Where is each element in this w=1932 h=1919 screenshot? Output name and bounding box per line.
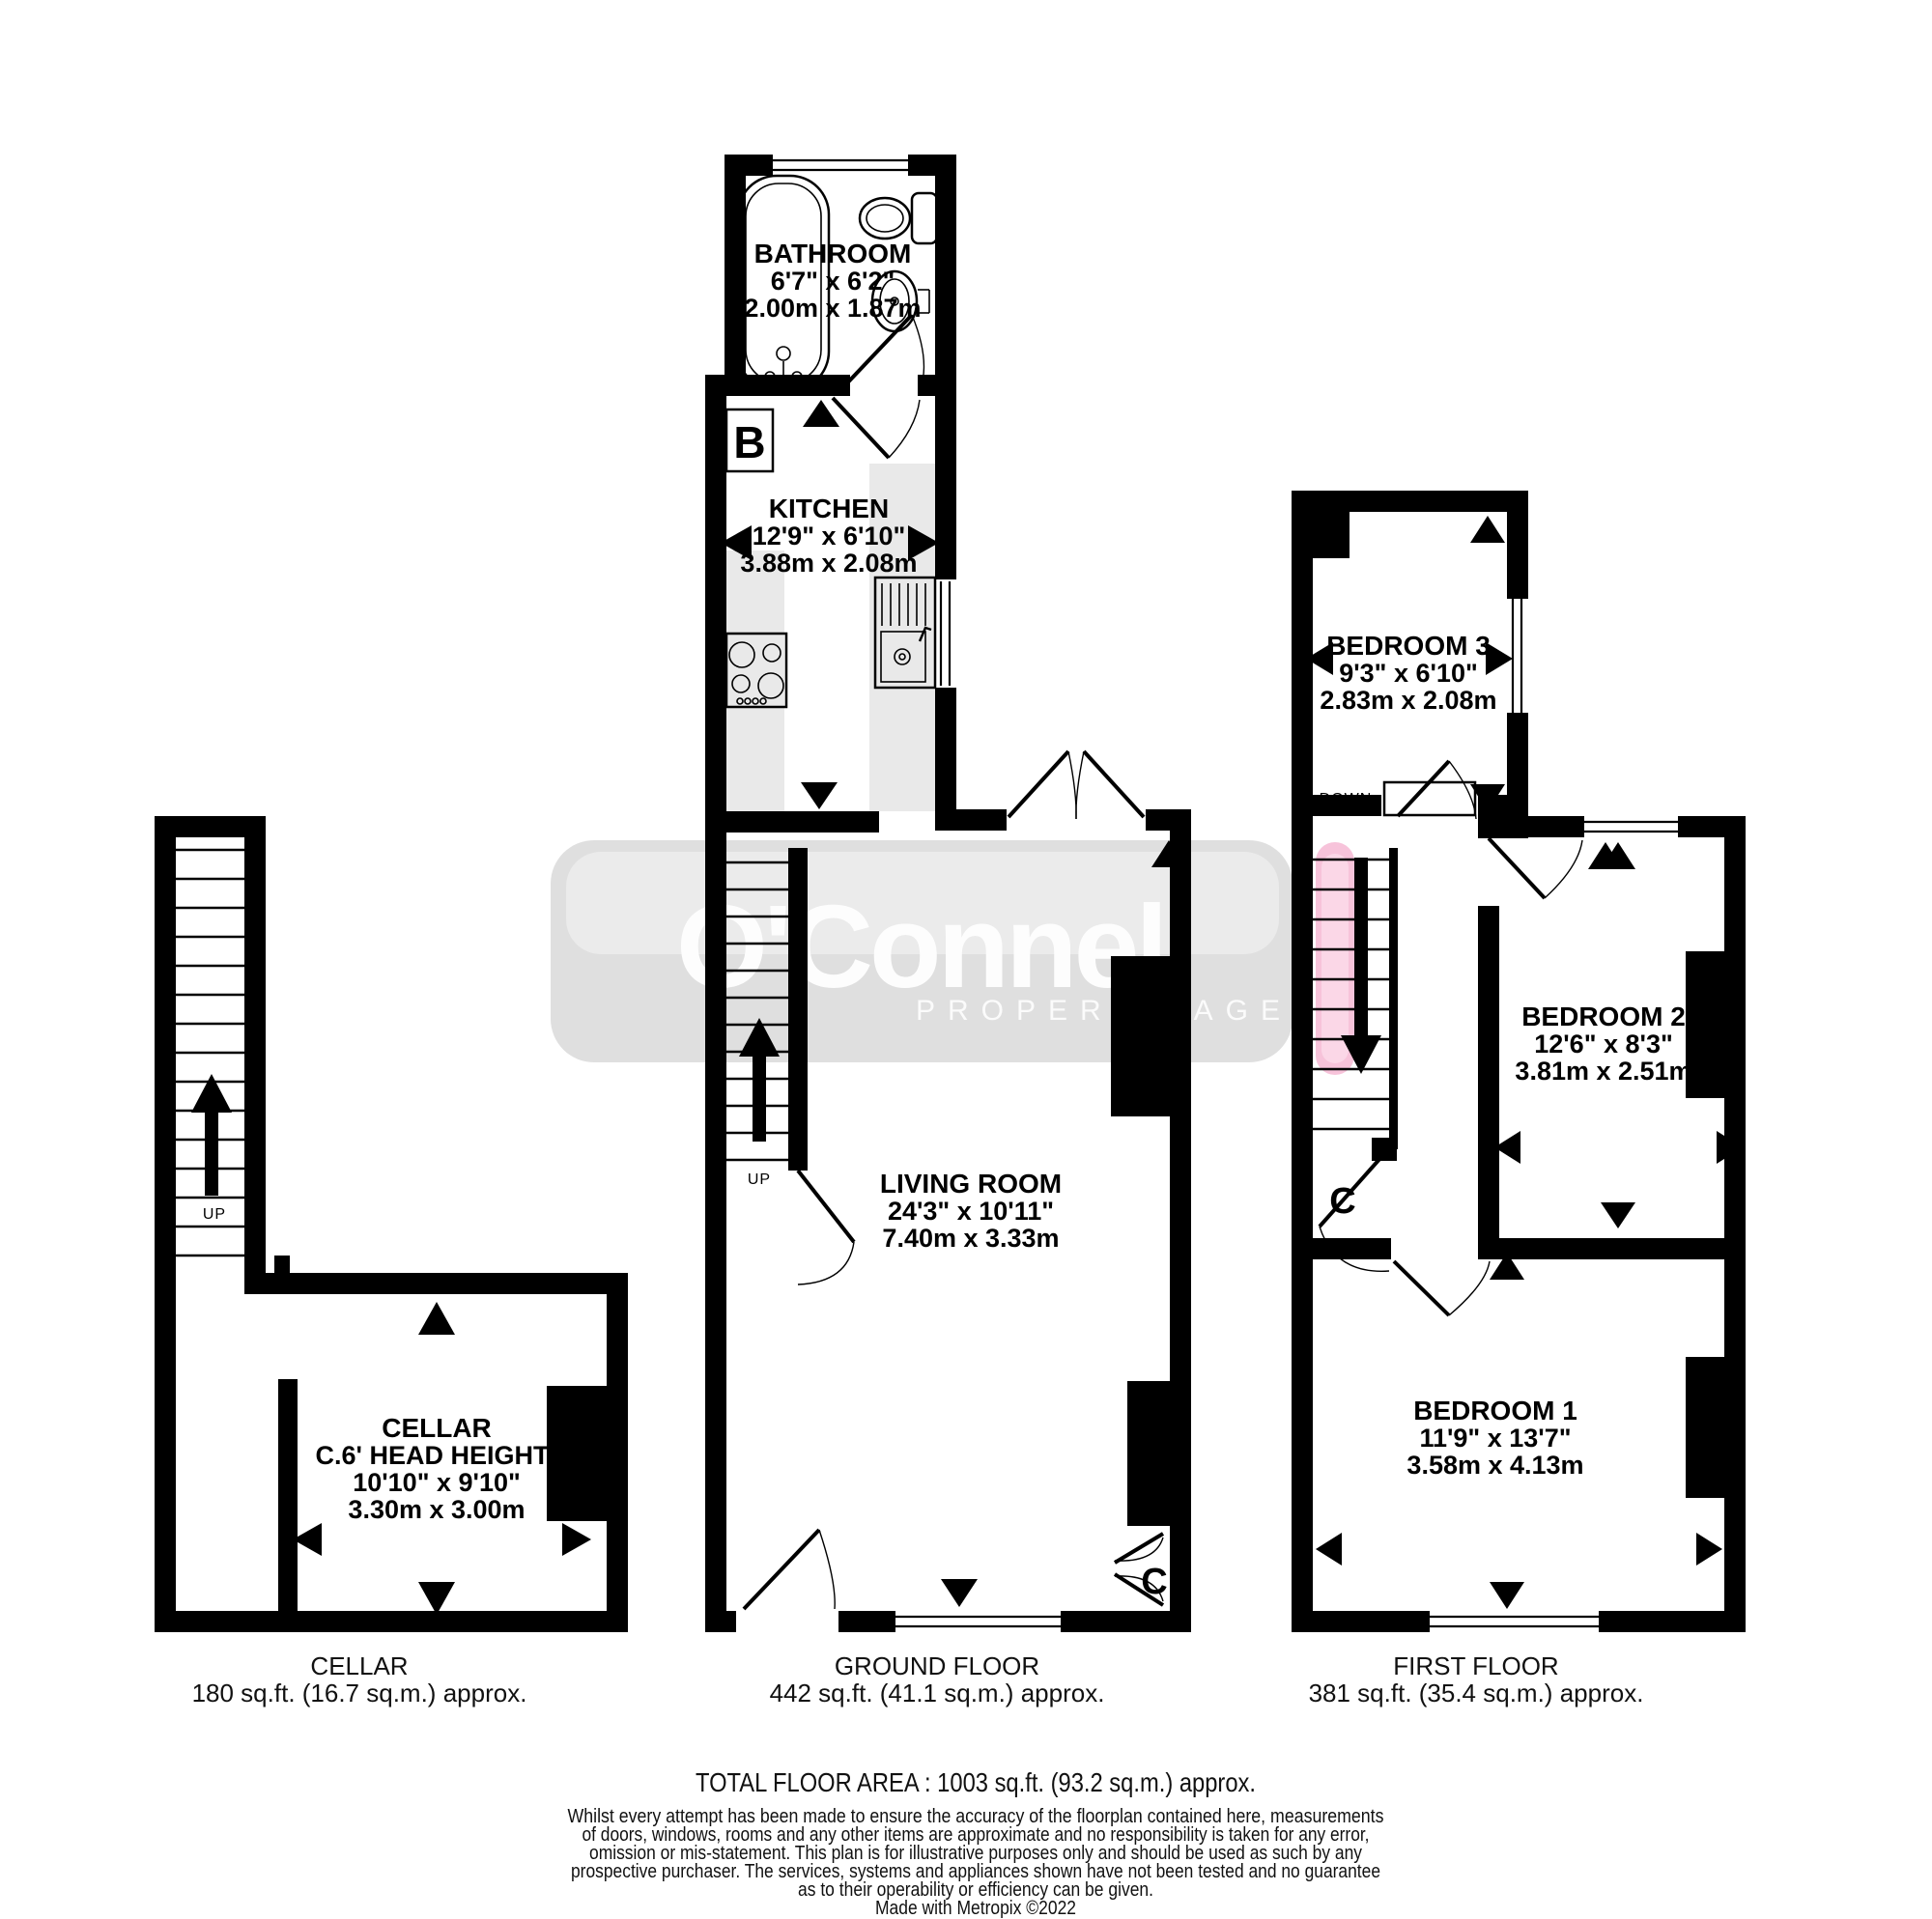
internal-wall — [278, 1379, 298, 1611]
first-floor-label: FIRST FLOOR — [1393, 1651, 1558, 1680]
room-dims-metric: 3.81m x 2.51m — [1515, 1057, 1691, 1086]
room-name: BEDROOM 3 — [1326, 631, 1491, 661]
cupboard-label: C — [1329, 1181, 1355, 1222]
room-name: BEDROOM 1 — [1413, 1396, 1577, 1425]
room-name: BATHROOM — [754, 239, 912, 268]
door-leaf — [833, 398, 889, 458]
door-leaf — [1394, 1261, 1449, 1315]
direction-arrow-up — [803, 400, 839, 427]
direction-arrow-down — [801, 782, 838, 809]
stair-direction-arrow — [753, 1055, 766, 1142]
room-dims-metric: 3.30m x 3.00m — [348, 1495, 525, 1524]
room-name: CELLAR — [382, 1413, 492, 1443]
room-dims-imperial: 9'3" x 6'10" — [1339, 659, 1478, 688]
wall — [1292, 1611, 1430, 1632]
room-dims-imperial: 24'3" x 10'11" — [888, 1197, 1054, 1226]
stairs-up — [176, 850, 244, 1256]
cellar-room-label: CELLAR C.6' HEAD HEIGHT) 10'10" x 9'10" … — [316, 1413, 558, 1524]
toilet-icon — [860, 193, 937, 243]
room-name: BEDROOM 2 — [1521, 1002, 1686, 1031]
door-arc — [1449, 761, 1476, 819]
room-dims-metric: 7.40m x 3.33m — [882, 1224, 1059, 1253]
boiler-label: B — [733, 417, 765, 467]
room-dims-imperial: 12'6" x 8'3" — [1534, 1030, 1673, 1058]
wall-stub — [1372, 1138, 1397, 1161]
door-arc — [798, 1242, 854, 1284]
direction-arrow-down — [1490, 1582, 1524, 1609]
bedroom2-room-label: BEDROOM 2 12'6" x 8'3" 3.81m x 2.51m — [1515, 1002, 1691, 1086]
door-arc — [1545, 840, 1582, 898]
cellar-floor-label: CELLAR — [310, 1651, 408, 1680]
room-dims-imperial: 11'9" x 13'7" — [1419, 1424, 1571, 1453]
room-name: LIVING ROOM — [880, 1169, 1062, 1199]
direction-arrow-right — [562, 1523, 591, 1556]
front-door-arc — [819, 1530, 835, 1609]
room-dims-metric: 3.58m x 4.13m — [1406, 1451, 1583, 1480]
first-floor-plan: BEDROOM 3 9'3" x 6'10" 2.83m x 2.08m DOW… — [1292, 491, 1746, 1707]
wall — [935, 155, 956, 579]
wall — [1507, 491, 1528, 599]
direction-arrow-up — [1470, 516, 1505, 543]
chimney-breast — [1686, 1357, 1724, 1498]
direction-arrow-down — [1601, 1202, 1635, 1228]
wall — [1061, 1611, 1191, 1632]
direction-arrow-left — [1316, 1533, 1342, 1566]
wall — [1478, 906, 1499, 1238]
stair-direction-arrow-head — [191, 1074, 232, 1113]
chimney-breast — [1313, 512, 1350, 558]
wall — [1170, 809, 1191, 1632]
living-room-label: LIVING ROOM 24'3" x 10'11" 7.40m x 3.33m — [880, 1169, 1062, 1253]
wall — [155, 816, 176, 1632]
room-dims-imperial: 10'10" x 9'10" — [353, 1468, 521, 1497]
metropix-credit: Made with Metropix ©2022 — [875, 1898, 1076, 1919]
wall — [705, 375, 850, 396]
total-floor-area: TOTAL FLOOR AREA : 1003 sq.ft. (93.2 sq.… — [696, 1767, 1256, 1797]
wall — [1292, 491, 1528, 512]
direction-arrow-down — [418, 1582, 455, 1615]
room-dims-metric: 3.88m x 2.08m — [740, 549, 917, 578]
wall — [838, 1611, 895, 1632]
bedroom3-room-label: BEDROOM 3 9'3" x 6'10" 2.83m x 2.08m — [1320, 631, 1496, 715]
wall — [1292, 491, 1313, 816]
wall — [607, 1273, 628, 1632]
door-leaf — [798, 1171, 854, 1242]
wall — [724, 155, 746, 396]
stairs-down-label: DOWN — [1320, 791, 1373, 807]
chimney-breast — [1127, 1381, 1170, 1526]
room-note: C.6' HEAD HEIGHT) — [316, 1441, 558, 1470]
wall — [1478, 1238, 1746, 1259]
wall — [705, 396, 726, 1632]
footer: TOTAL FLOOR AREA : 1003 sq.ft. (93.2 sq.… — [568, 1767, 1384, 1919]
cupboard-label: C — [1141, 1562, 1167, 1602]
window — [773, 155, 908, 176]
first-floor-area: 381 sq.ft. (35.4 sq.m.) approx. — [1309, 1679, 1644, 1707]
door-leaf — [842, 315, 912, 388]
direction-arrow-down — [941, 1579, 978, 1607]
stair-direction-arrow — [1354, 858, 1368, 1037]
window — [1584, 816, 1678, 837]
wall — [1313, 1238, 1391, 1259]
window — [1507, 599, 1528, 713]
room-name: KITCHEN — [769, 494, 889, 523]
bedroom1-room-label: BEDROOM 1 11'9" x 13'7" 3.58m x 4.13m — [1406, 1396, 1583, 1480]
watermark-pink-mark-inner — [1321, 854, 1349, 1063]
direction-arrow-up — [418, 1302, 455, 1335]
kitchen-counter — [726, 550, 784, 811]
wall-stub — [274, 1256, 290, 1273]
door-leaf — [1489, 838, 1545, 898]
direction-arrow-right — [1696, 1533, 1722, 1566]
chimney-breast — [1111, 956, 1170, 1116]
door-leaf — [1398, 761, 1449, 816]
door-arc — [889, 400, 920, 458]
wall — [1528, 816, 1584, 837]
wall — [935, 809, 956, 831]
ground-floor-area: 442 sq.ft. (41.1 sq.m.) approx. — [770, 1679, 1105, 1707]
wall — [935, 688, 956, 831]
window — [895, 1611, 1061, 1632]
wall — [1478, 816, 1528, 838]
stairs-up-label: UP — [203, 1206, 226, 1223]
cellar-floor-area: 180 sq.ft. (16.7 sq.m.) approx. — [192, 1679, 527, 1707]
room-dims-imperial: 12'9" x 6'10" — [753, 522, 906, 550]
wall — [244, 1273, 628, 1294]
overstairs-cupboard — [1384, 782, 1475, 815]
ground-floor-label: GROUND FLOOR — [835, 1651, 1039, 1680]
room-dims-metric: 2.00m x 1.87m — [744, 294, 921, 323]
wall — [705, 811, 879, 833]
stairs-up-label: UP — [748, 1171, 771, 1188]
door-arc — [1449, 1261, 1490, 1315]
stair-direction-arrow — [205, 1111, 218, 1196]
wall — [1724, 816, 1746, 1632]
room-dims-imperial: 6'7" x 6'2" — [771, 267, 895, 296]
wall — [1599, 1611, 1746, 1632]
floorplan-page: O'Connell PROPERTY AGENTS — [0, 0, 1932, 1919]
window — [1430, 1611, 1599, 1632]
wall — [956, 809, 1007, 831]
wall — [1292, 816, 1313, 1632]
bathroom-room-label: BATHROOM 6'7" x 6'2" 2.00m x 1.87m — [744, 239, 921, 323]
watermark: O'Connell PROPERTY AGENTS — [551, 840, 1388, 1075]
front-door-leaf — [744, 1530, 819, 1609]
room-dims-metric: 2.83m x 2.08m — [1320, 686, 1496, 715]
wall — [705, 1611, 736, 1632]
french-doors — [1009, 751, 1144, 819]
wall — [244, 816, 266, 1273]
wall — [155, 1611, 628, 1632]
window — [935, 579, 956, 688]
floorplan-canvas: O'Connell PROPERTY AGENTS — [0, 0, 1932, 1919]
